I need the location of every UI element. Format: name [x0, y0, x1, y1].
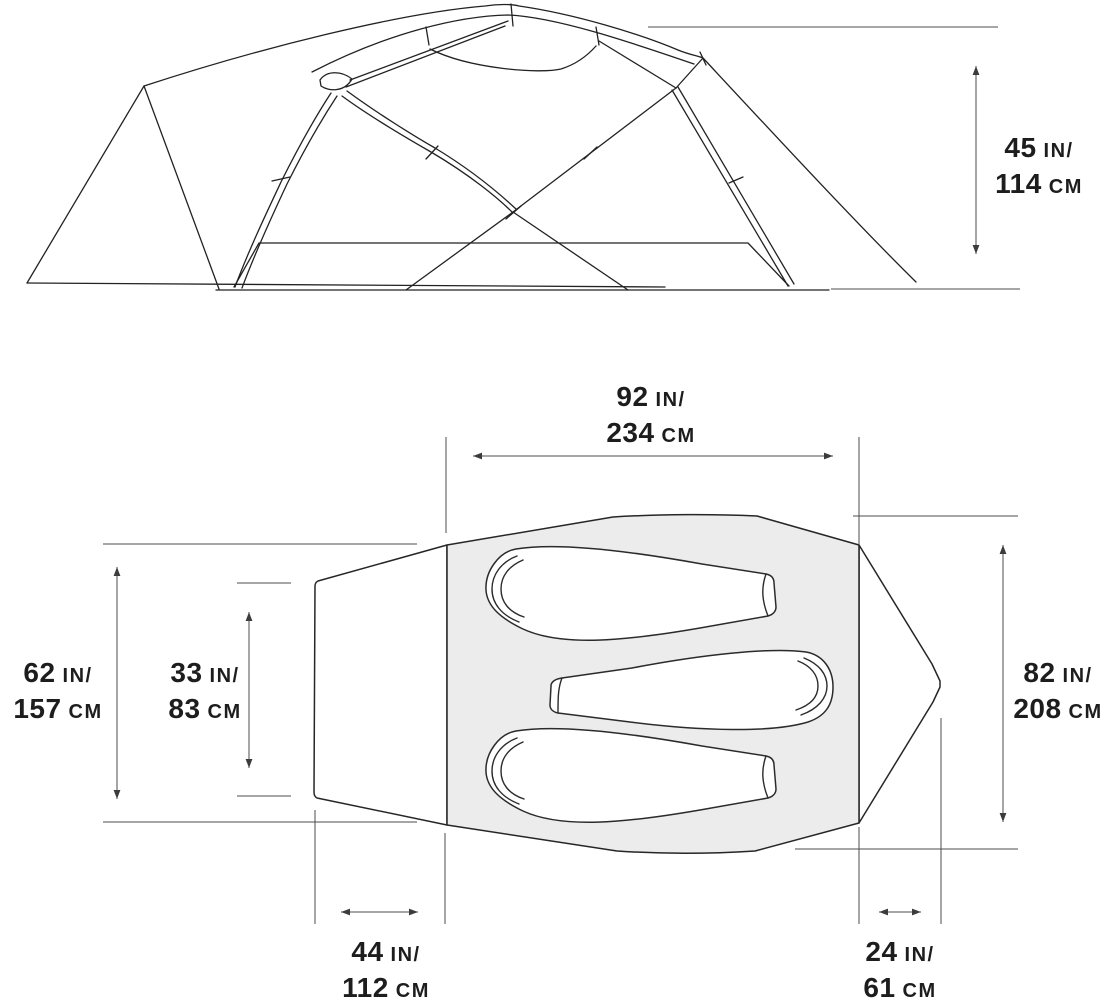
rear-vestibule-in-value: 44: [351, 936, 383, 967]
pole-line: [346, 26, 505, 87]
rear-vestibule-cm-unit: CM: [396, 980, 430, 1000]
floor-length-in-value: 92: [616, 381, 648, 412]
peak-height-label: 45IN/ 114CM: [995, 130, 1083, 202]
front-vestibule-depth-label: 24IN/ 61CM: [863, 934, 936, 1000]
floor-length-label: 92IN/ 234CM: [606, 379, 695, 451]
peak-height-in-unit: IN/: [1044, 140, 1074, 162]
vestibule-width-cm-unit: CM: [69, 701, 103, 723]
clip-tick: [272, 177, 290, 181]
cross-pole: [513, 212, 628, 290]
pole-tip-left: [426, 27, 429, 45]
inner-wall-right: [678, 87, 794, 284]
door-width-in-value: 33: [170, 657, 202, 688]
rear-vestibule-depth-label: 44IN/ 112CM: [342, 934, 430, 1000]
bathtub-floor: [234, 243, 789, 287]
front-vestibule-cm-unit: CM: [903, 980, 937, 1000]
vestibule-width-label: 62IN/ 157CM: [13, 655, 102, 727]
floor-length-cm-unit: CM: [662, 425, 696, 447]
rear-vestibule-shape: [314, 545, 447, 825]
peak-height-cm-value: 114: [995, 168, 1042, 199]
vestibule-width-in-value: 62: [23, 657, 55, 688]
door-catenary-curve: [430, 46, 596, 71]
peak-height-cm-unit: CM: [1049, 176, 1083, 198]
side-left-vestibule: [27, 86, 219, 289]
door-width-cm-unit: CM: [208, 701, 242, 723]
door-width-label: 33IN/ 83CM: [168, 655, 241, 727]
floor-length-in-unit: IN/: [656, 389, 686, 411]
pole-line: [350, 21, 508, 80]
floor-width-cm-unit: CM: [1069, 701, 1103, 723]
front-vestibule-shape: [859, 545, 940, 823]
rear-vestibule-in-unit: IN/: [391, 944, 421, 966]
floor-width-in-unit: IN/: [1063, 665, 1093, 687]
floor-width-label: 82IN/ 208CM: [1013, 655, 1102, 727]
bowed-pole: [347, 91, 516, 209]
pole-line: [599, 41, 676, 88]
pole-tip-right: [596, 27, 599, 45]
diagram-canvas: [0, 0, 1114, 1000]
floor-width-in-value: 82: [1023, 657, 1055, 688]
tent-dimensions-diagram: 45IN/ 114CM 92IN/ 234CM 62IN/ 157CM 33IN…: [0, 0, 1114, 1000]
ground-line: [27, 283, 665, 287]
clip-tick: [426, 146, 438, 159]
bowed-pole: [342, 96, 512, 212]
vestibule-width-in-unit: IN/: [63, 665, 93, 687]
inner-wall-right: [672, 90, 788, 286]
inner-wall-left: [242, 96, 337, 288]
clip-tick: [584, 147, 597, 159]
peak-height-in-value: 45: [1004, 132, 1036, 163]
front-vestibule-in-value: 24: [865, 936, 897, 967]
front-vestibule-in-unit: IN/: [905, 944, 935, 966]
floor-width-cm-value: 208: [1013, 693, 1061, 724]
rear-vestibule-cm-value: 112: [342, 972, 389, 1000]
tent-side-view: [27, 4, 1020, 290]
floor-length-cm-value: 234: [606, 417, 654, 448]
cross-pole: [406, 212, 513, 290]
inner-wall-left: [235, 93, 331, 287]
vestibule-width-cm-value: 157: [13, 693, 61, 724]
front-vestibule-cm-value: 61: [863, 972, 895, 1000]
door-width-cm-value: 83: [168, 693, 200, 724]
rainfly-outline: [144, 5, 916, 283]
door-width-in-unit: IN/: [210, 665, 240, 687]
